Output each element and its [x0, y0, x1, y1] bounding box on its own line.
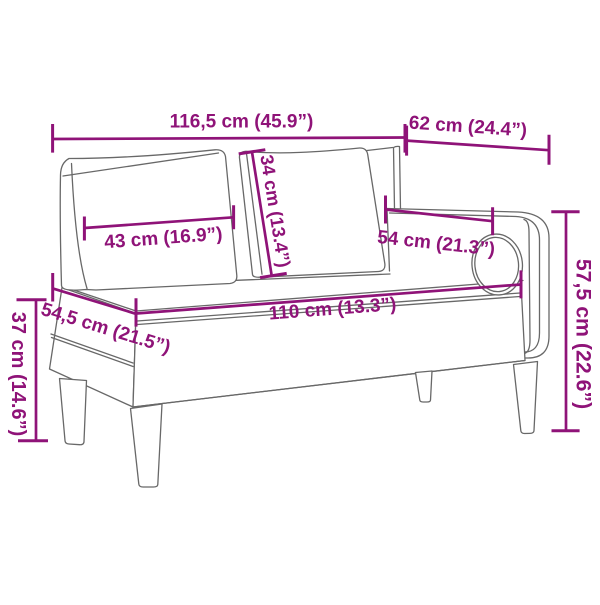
svg-text:57,5 cm (22.6”): 57,5 cm (22.6”)	[572, 259, 596, 409]
svg-text:116,5 cm (45.9”): 116,5 cm (45.9”)	[170, 112, 314, 133]
svg-text:37 cm (14.6”): 37 cm (14.6”)	[7, 312, 29, 437]
